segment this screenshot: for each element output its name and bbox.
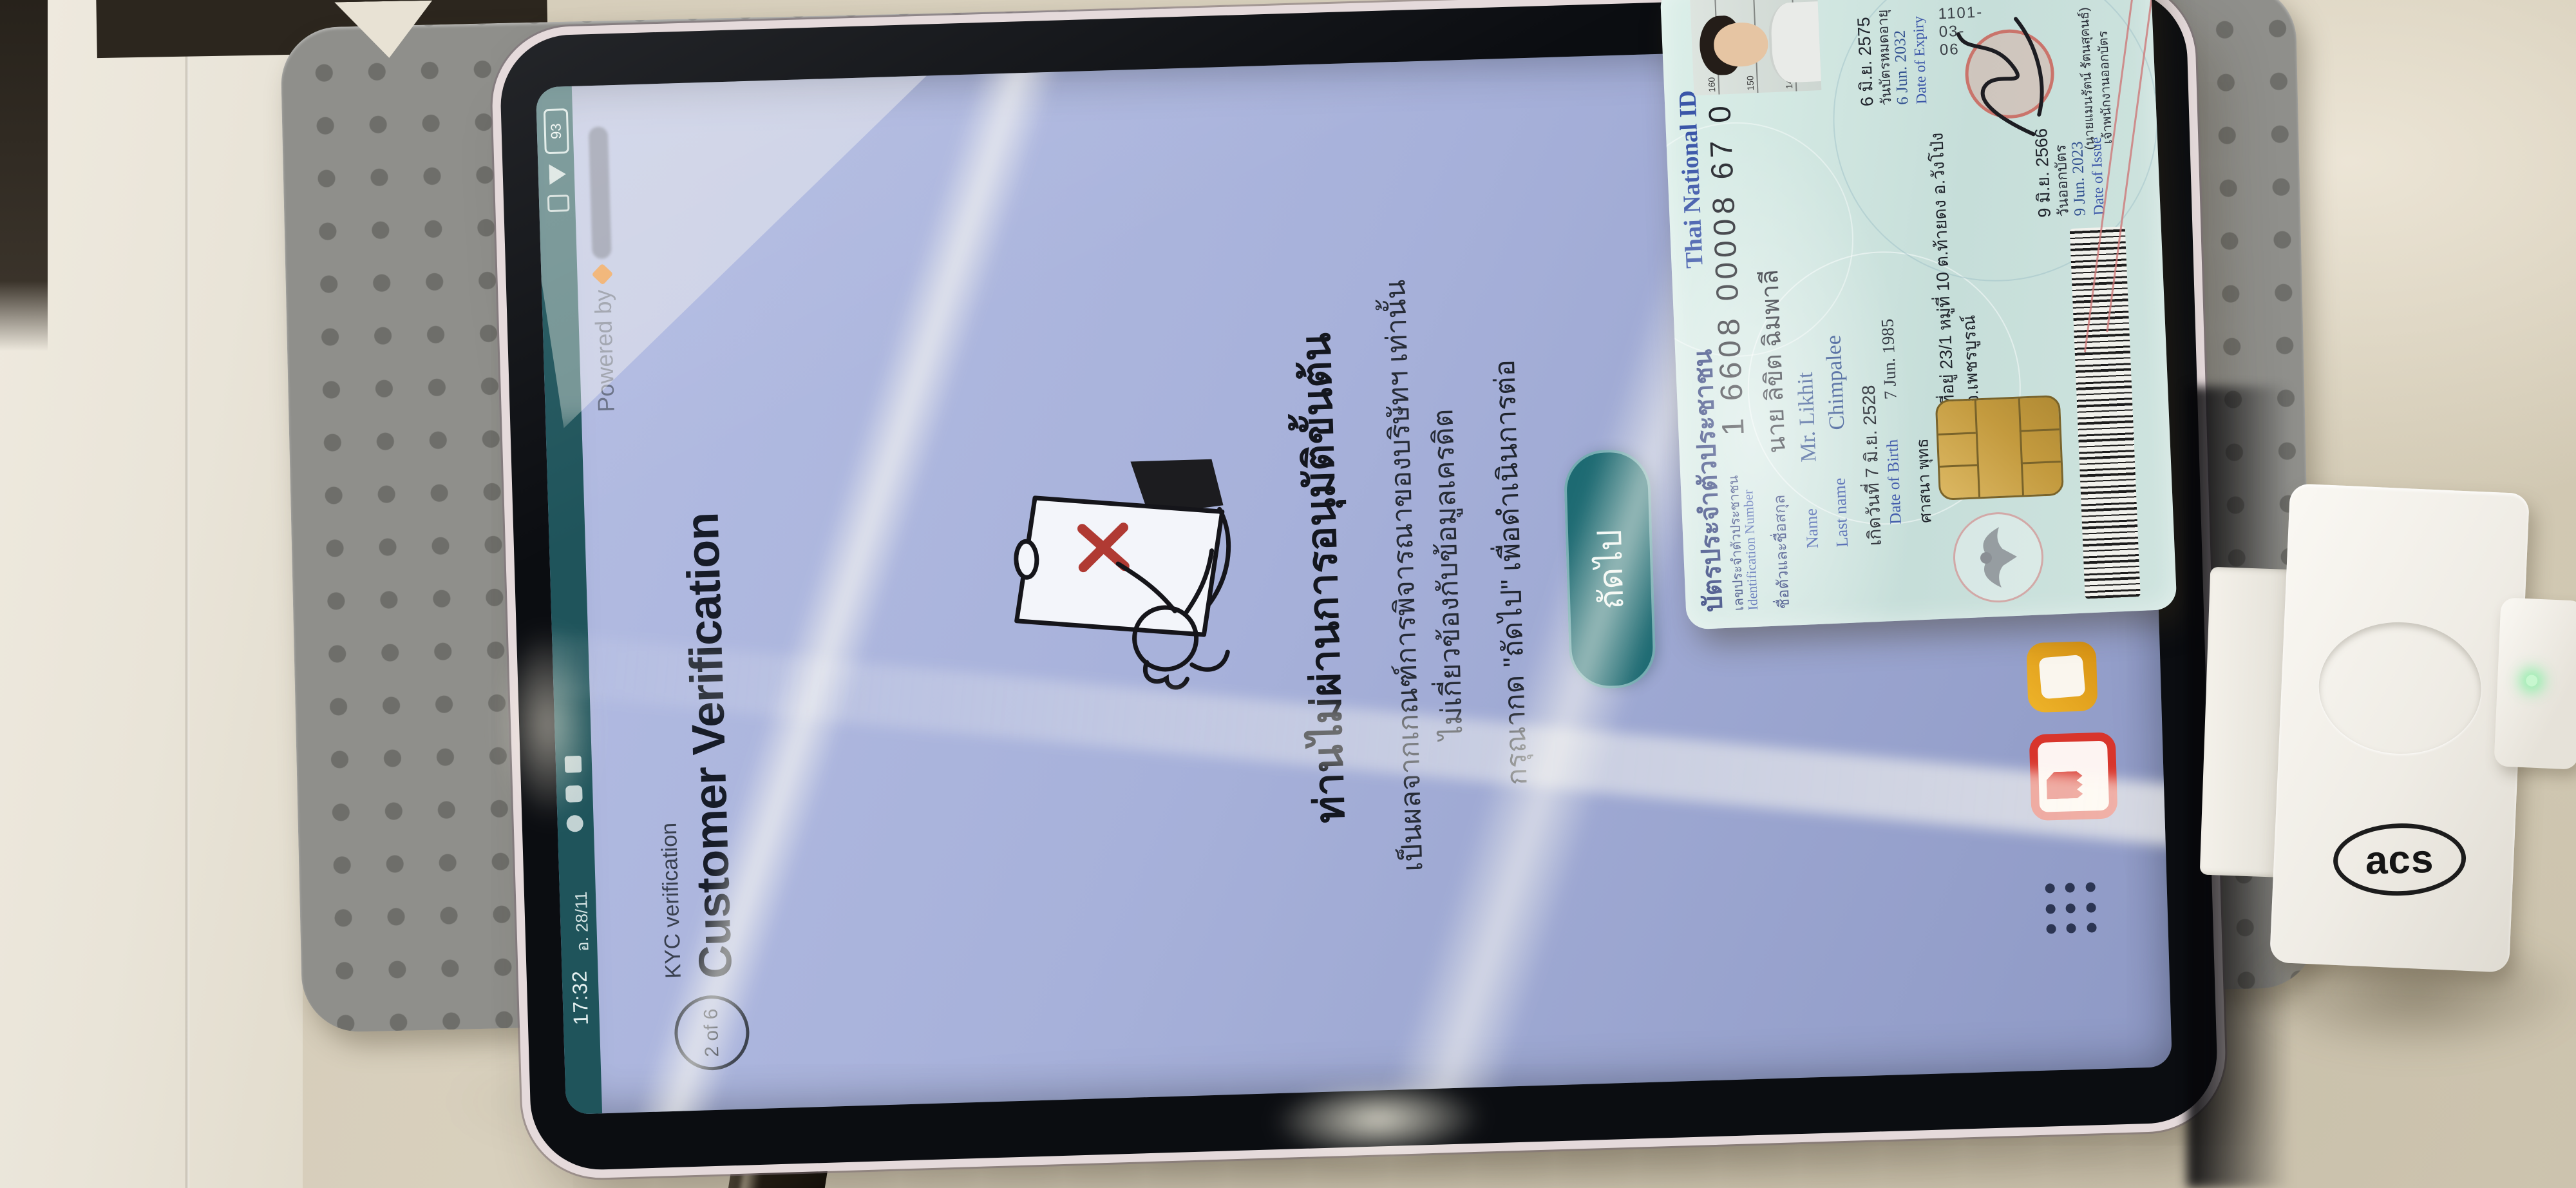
acs-logo-text: acs — [2365, 836, 2434, 883]
acs-logo: acs — [2333, 822, 2467, 897]
bezel-light-streak — [497, 627, 600, 823]
acs-card-reader: acs — [2269, 483, 2530, 973]
photo-scene: 17:32 อ. 28/11 93 Powered by — [0, 0, 2576, 1188]
id-card-face: บัตรประจำตัวประชาชน Thai National ID เลข… — [1660, 0, 2177, 630]
thai-national-id-card: บัตรประจำตัวประชาชน Thai National ID เลข… — [1660, 0, 2177, 630]
card-laminate-sheen — [1660, 0, 2177, 630]
dark-corner-edge — [0, 0, 48, 351]
reader-emboss-oval — [2316, 619, 2484, 758]
reader-usb-dongle — [2494, 597, 2576, 769]
green-led-indicator — [2526, 675, 2538, 687]
panel-seam — [185, 0, 189, 1188]
